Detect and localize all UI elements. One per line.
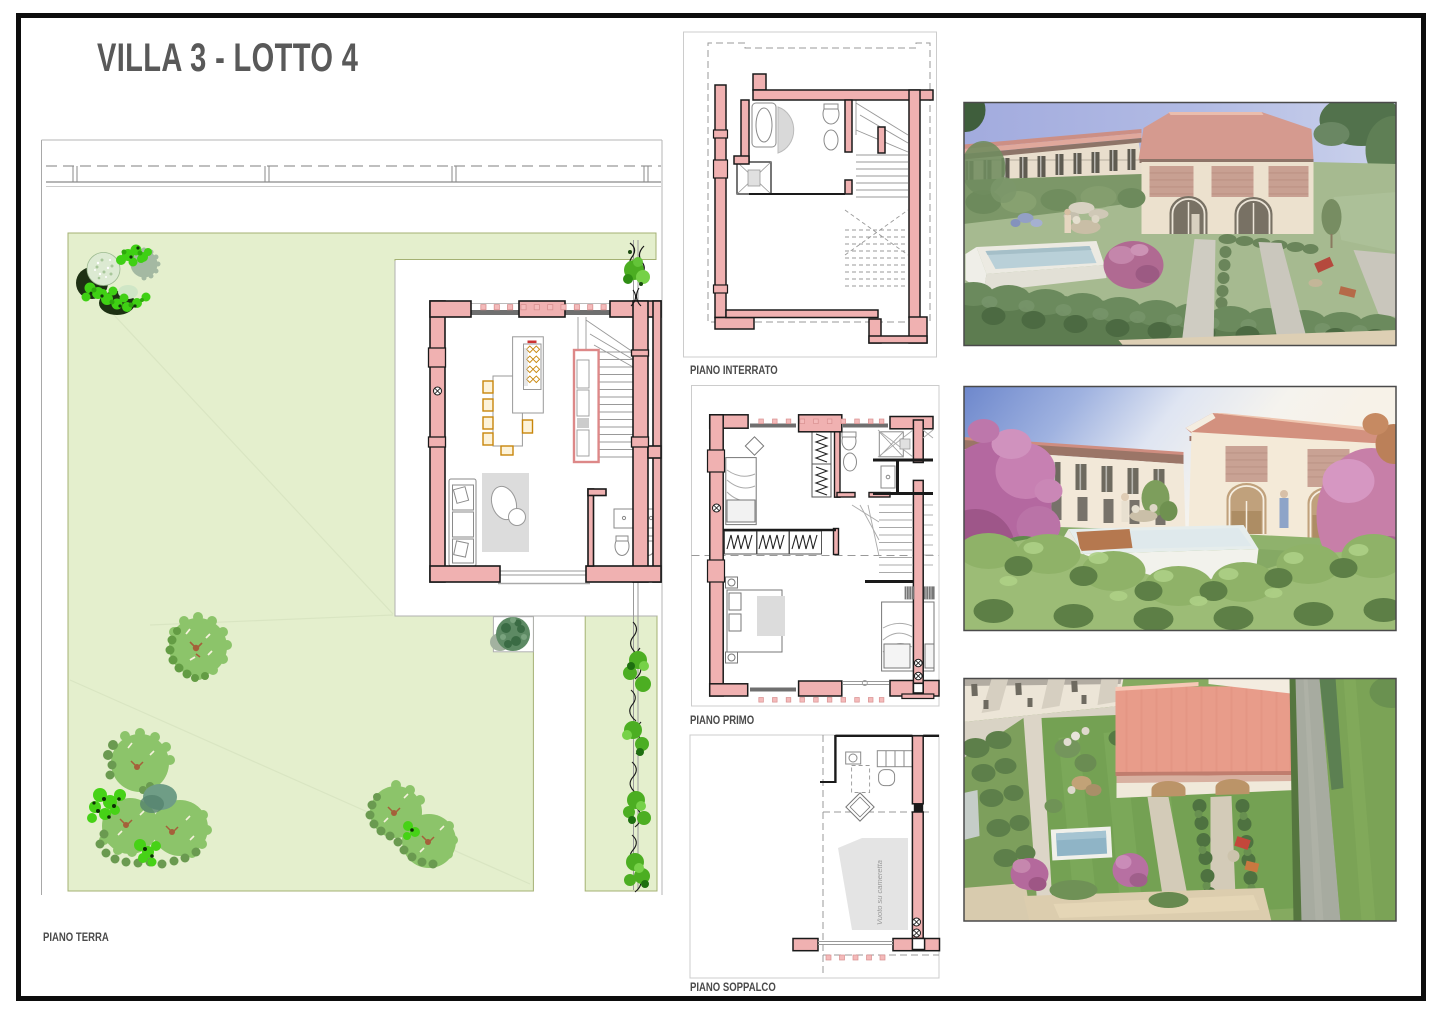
svg-text:Vuoto su cameretta: Vuoto su cameretta <box>875 860 884 925</box>
